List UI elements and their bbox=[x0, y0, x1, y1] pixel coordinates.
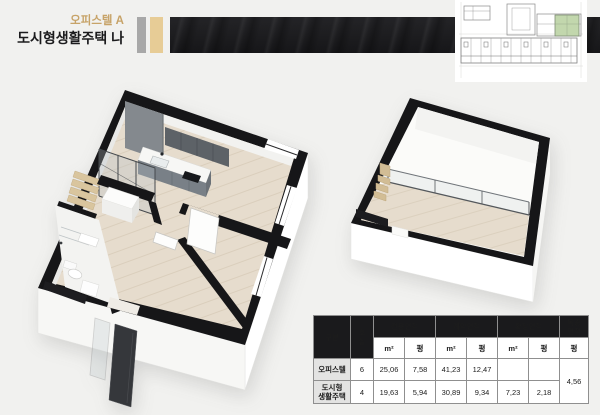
table-header-row-groups: 구분 호 실 전용면적 계약면적 확장면적 복층 면적 bbox=[314, 316, 589, 338]
row-category: 오피스텔 bbox=[314, 359, 351, 381]
accent-bar-gray bbox=[137, 17, 146, 53]
kitchen-faucet bbox=[160, 152, 163, 155]
unit-py: 평 bbox=[529, 338, 560, 359]
header-duplex-area: 복층 면적 bbox=[560, 316, 589, 338]
contract-py: 12,47 bbox=[467, 359, 498, 381]
contract-m2: 30,89 bbox=[436, 381, 467, 404]
contract-m2: 41,23 bbox=[436, 359, 467, 381]
unit-m2: m² bbox=[436, 338, 467, 359]
expansion-m2: 7,23 bbox=[498, 381, 529, 404]
page-title: 오피스텔 A 도시형생활주택 나 bbox=[0, 15, 124, 46]
row-room-count: 4 bbox=[351, 381, 374, 404]
building-key-plan bbox=[455, 0, 587, 82]
unit-m2: m² bbox=[374, 338, 405, 359]
loft-floorplan-3d bbox=[330, 85, 580, 315]
accent-bar-gold bbox=[150, 17, 163, 53]
contract-py: 9,34 bbox=[467, 381, 498, 404]
unit-py: 평 bbox=[467, 338, 498, 359]
main-floorplan-3d bbox=[15, 75, 325, 415]
expansion-m2 bbox=[498, 359, 529, 381]
header-room: 호 실 bbox=[351, 316, 374, 359]
expansion-py: 2,18 bbox=[529, 381, 560, 404]
table-row-urban-housing: 도시형 생활주택 4 19,63 5,94 30,89 9,34 7,23 2,… bbox=[314, 381, 589, 404]
title-housing-type: 도시형생활주택 나 bbox=[0, 30, 124, 46]
header-category: 구분 bbox=[314, 316, 351, 359]
exclusive-m2: 25,06 bbox=[374, 359, 405, 381]
shower-head bbox=[60, 242, 63, 245]
row-category: 도시형 생활주택 bbox=[314, 381, 351, 404]
unit-m2: m² bbox=[498, 338, 529, 359]
expansion-py bbox=[529, 359, 560, 381]
unit-py: 평 bbox=[405, 338, 436, 359]
header-exclusive-area: 전용면적 bbox=[374, 316, 436, 338]
duplex-py: 4,56 bbox=[560, 359, 589, 404]
title-unit-type: 오피스텔 A bbox=[0, 15, 124, 28]
row-room-count: 6 bbox=[351, 359, 374, 381]
table-row-officetel: 오피스텔 6 25,06 7,58 41,23 12,47 4,56 bbox=[314, 359, 589, 381]
brochure-page: 오피스텔 A 도시형생활주택 나 bbox=[0, 0, 600, 415]
area-table: 구분 호 실 전용면적 계약면적 확장면적 복층 면적 m² 평 m² 평 m²… bbox=[313, 315, 589, 404]
header-contract-area: 계약면적 bbox=[436, 316, 498, 338]
exclusive-py: 7,58 bbox=[405, 359, 436, 381]
exclusive-py: 5,94 bbox=[405, 381, 436, 404]
exclusive-m2: 19,63 bbox=[374, 381, 405, 404]
unit-py: 평 bbox=[560, 338, 589, 359]
header-expansion-area: 확장면적 bbox=[498, 316, 560, 338]
